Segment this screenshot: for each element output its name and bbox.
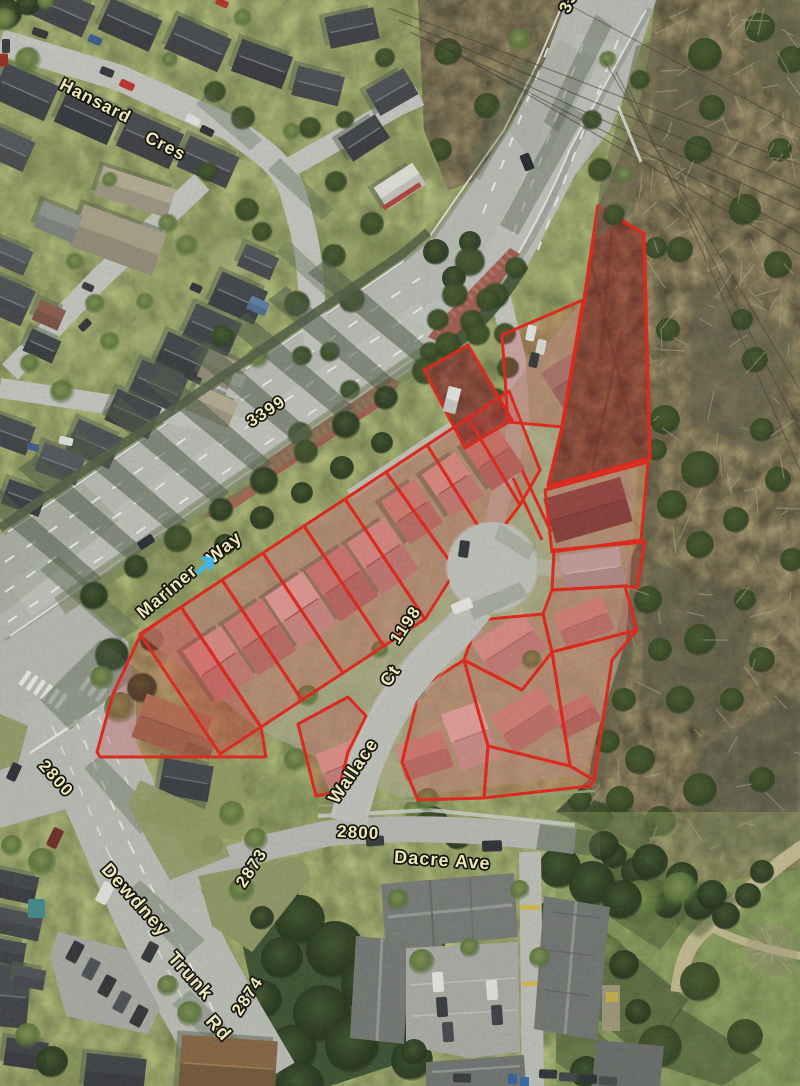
svg-text:2800: 2800	[337, 822, 380, 843]
